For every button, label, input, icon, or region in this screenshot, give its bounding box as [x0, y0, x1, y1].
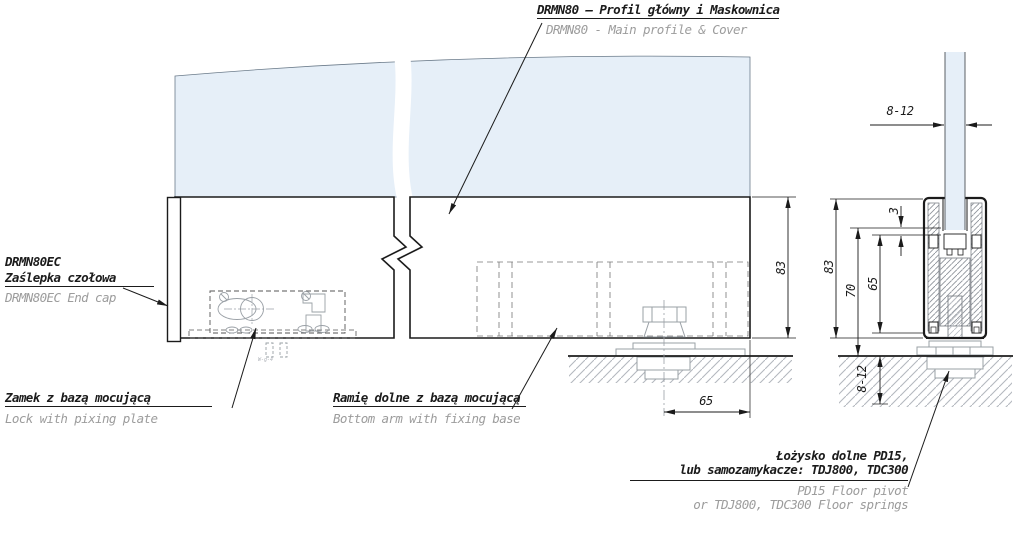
- floor-pivot-label-pl1: Łożysko dolne PD15,: [630, 449, 908, 463]
- dim-text-65-main: 65: [699, 394, 712, 408]
- bottom-arm-label-en: Bottom arm with fixing base: [333, 412, 520, 426]
- leader-end-cap: [123, 288, 168, 306]
- glass-panel: [175, 56, 750, 197]
- base-plate-detail: [917, 341, 993, 355]
- technical-drawing-page: DRMN80 – Profil główny i Maskownica DRMN…: [0, 0, 1017, 549]
- bottom-arm-label-pl: Ramię dolne z bazą mocującą: [333, 391, 526, 407]
- title-label-pl: DRMN80 – Profil główny i Maskownica: [537, 3, 779, 19]
- floor-pivot-label-en2: or TDJ800, TDC300 Floor springs: [630, 498, 908, 512]
- dim-text-83-main: 83: [774, 261, 788, 274]
- floor-pivot-label-block: Łożysko dolne PD15, lub samozamykacze: T…: [630, 449, 908, 513]
- pivot-pin: [948, 296, 962, 338]
- end-cap-label-pl2: Zaślepka czołowa: [5, 271, 154, 287]
- cross-section-view: [830, 52, 1013, 407]
- dim-text-floor-recess: 8-12: [855, 366, 869, 393]
- main-elevation-view: [168, 54, 797, 418]
- lock-label-en: Lock with pixing plate: [5, 412, 157, 426]
- leader-lock: [232, 328, 256, 408]
- title-label-en: DRMN80 - Main profile & Cover: [546, 23, 747, 37]
- strike-outline: [266, 343, 287, 357]
- wall-hatch-right: [971, 203, 982, 331]
- floor-pivot-label-pl2: lub samozamykacze: TDJ800, TDC300: [630, 463, 908, 480]
- dim-text-glass-thickness: 8-12: [887, 104, 914, 118]
- lock-label-pl: Zamek z bazą mocującą: [5, 391, 212, 407]
- wall-hatch-left: [928, 203, 939, 331]
- dim-text-3: 3: [887, 208, 901, 215]
- floor-pivot-label-en1: PD15 Floor pivot: [630, 484, 908, 498]
- dim-text-70: 70: [844, 284, 858, 297]
- dim-text-83-detail: 83: [822, 260, 836, 273]
- lock-tiny-note: W-g-4: [258, 357, 273, 363]
- end-cap-label-pl1: DRMN80EC: [5, 255, 60, 269]
- floor-pivot-detail: [927, 357, 983, 378]
- end-cap-label-en: DRMN80EC End cap: [5, 291, 116, 305]
- main-profile-right: [398, 197, 750, 338]
- end-cap: [168, 198, 181, 342]
- base-plate-main: [616, 343, 745, 356]
- dim-text-65-detail: 65: [866, 277, 880, 290]
- glass-section: [945, 52, 965, 230]
